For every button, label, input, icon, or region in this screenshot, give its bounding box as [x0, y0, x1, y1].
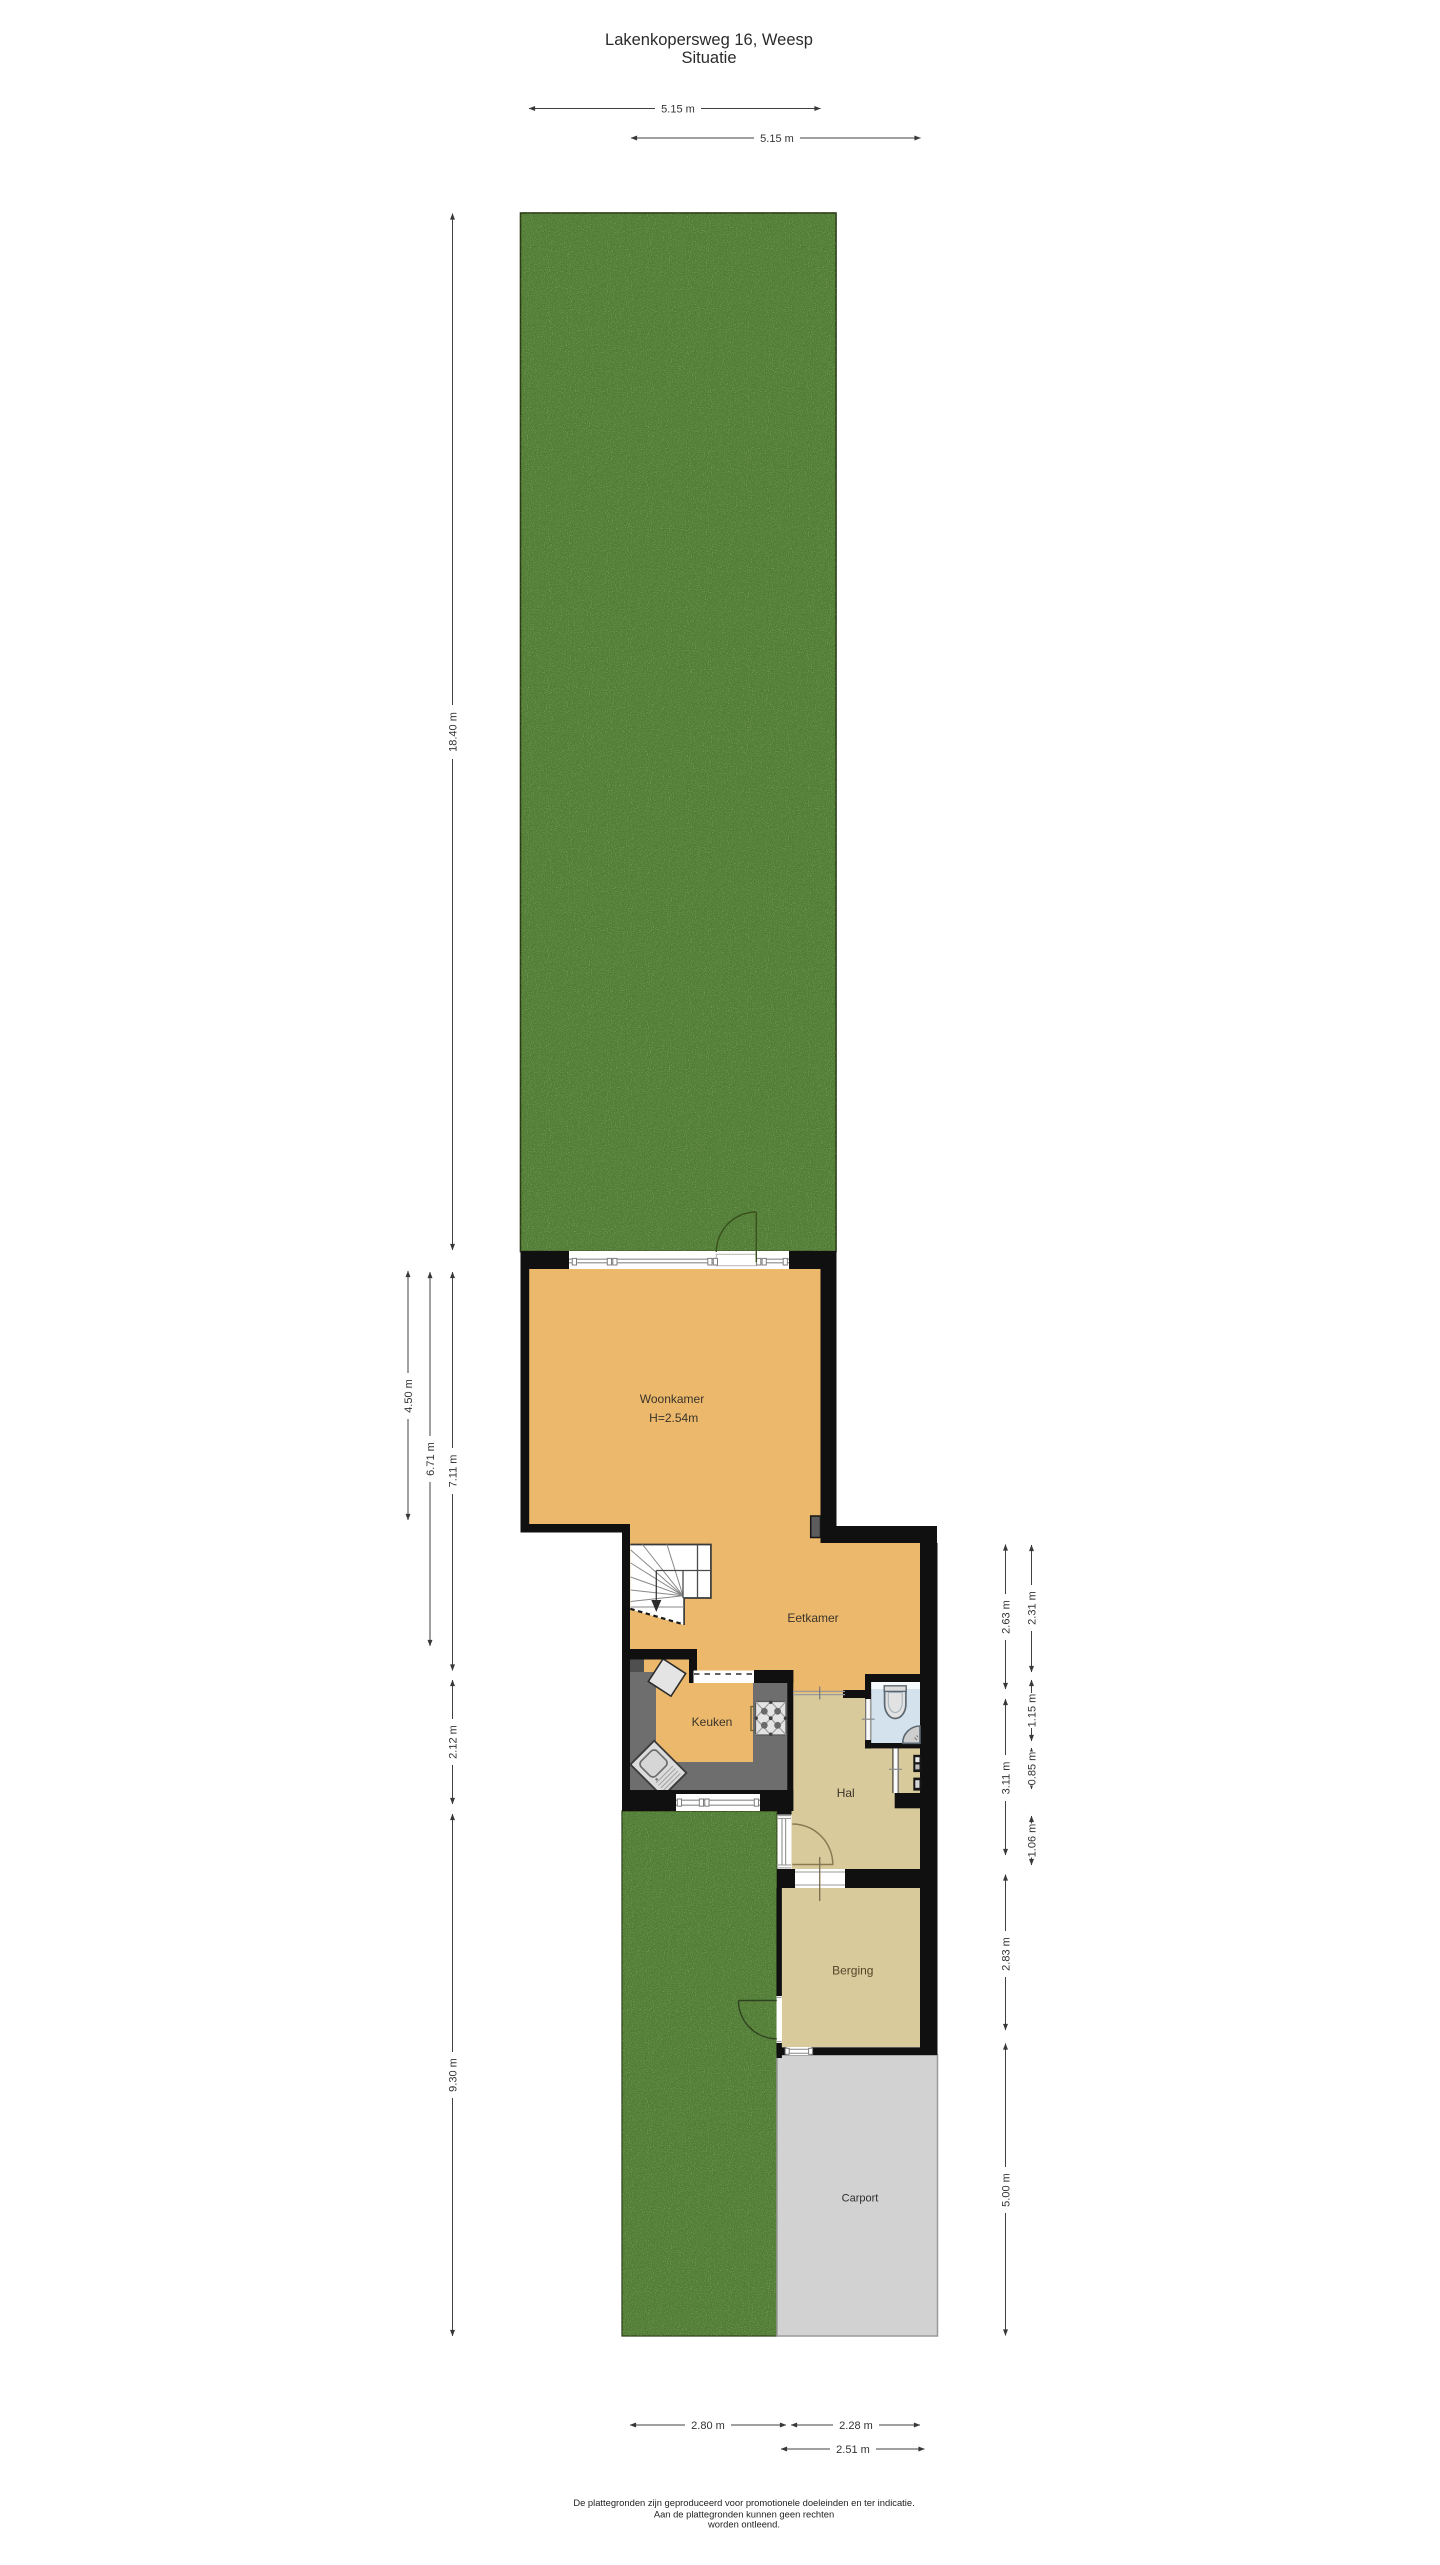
svg-text:Situatie: Situatie — [681, 49, 736, 67]
svg-text:worden ontleend.: worden ontleend. — [707, 2519, 780, 2530]
svg-text:3.11 m: 3.11 m — [1001, 1762, 1013, 1795]
svg-text:Carport: Carport — [842, 2193, 879, 2205]
svg-text:7.11 m: 7.11 m — [448, 1455, 460, 1488]
svg-text:9.30 m: 9.30 m — [448, 2058, 460, 2092]
svg-text:H=2.54m: H=2.54m — [649, 1411, 698, 1425]
svg-text:5.15 m: 5.15 m — [661, 104, 695, 116]
svg-text:5.15 m: 5.15 m — [760, 133, 794, 145]
svg-text:2.83 m: 2.83 m — [1001, 1937, 1013, 1971]
svg-text:Woonkamer: Woonkamer — [640, 1392, 704, 1406]
svg-text:2.63 m: 2.63 m — [1001, 1600, 1013, 1634]
svg-text:Eetkamer: Eetkamer — [787, 1611, 838, 1625]
svg-text:6.71 m: 6.71 m — [425, 1442, 437, 1476]
svg-text:2.51 m: 2.51 m — [836, 2444, 870, 2456]
svg-text:Berging: Berging — [832, 1964, 873, 1978]
svg-text:2.28 m: 2.28 m — [839, 2420, 873, 2432]
svg-text:2.31 m: 2.31 m — [1027, 1591, 1039, 1625]
svg-text:Hal: Hal — [837, 1786, 855, 1800]
svg-text:Keuken: Keuken — [692, 1715, 733, 1729]
svg-text:4.50 m: 4.50 m — [403, 1379, 415, 1413]
svg-text:5.00 m: 5.00 m — [1001, 2173, 1013, 2207]
svg-text:2.12 m: 2.12 m — [448, 1725, 460, 1759]
svg-text:Lakenkopersweg 16, Weesp: Lakenkopersweg 16, Weesp — [605, 31, 813, 49]
svg-text:1.15 m: 1.15 m — [1027, 1694, 1039, 1728]
svg-text:18.40 m: 18.40 m — [448, 712, 460, 752]
svg-text:0.85 m: 0.85 m — [1027, 1752, 1039, 1786]
svg-text:1.06 m: 1.06 m — [1027, 1824, 1039, 1858]
svg-text:2.80 m: 2.80 m — [691, 2420, 725, 2432]
svg-text:De plattegronden zijn geproduc: De plattegronden zijn geproduceerd voor … — [573, 2497, 914, 2508]
